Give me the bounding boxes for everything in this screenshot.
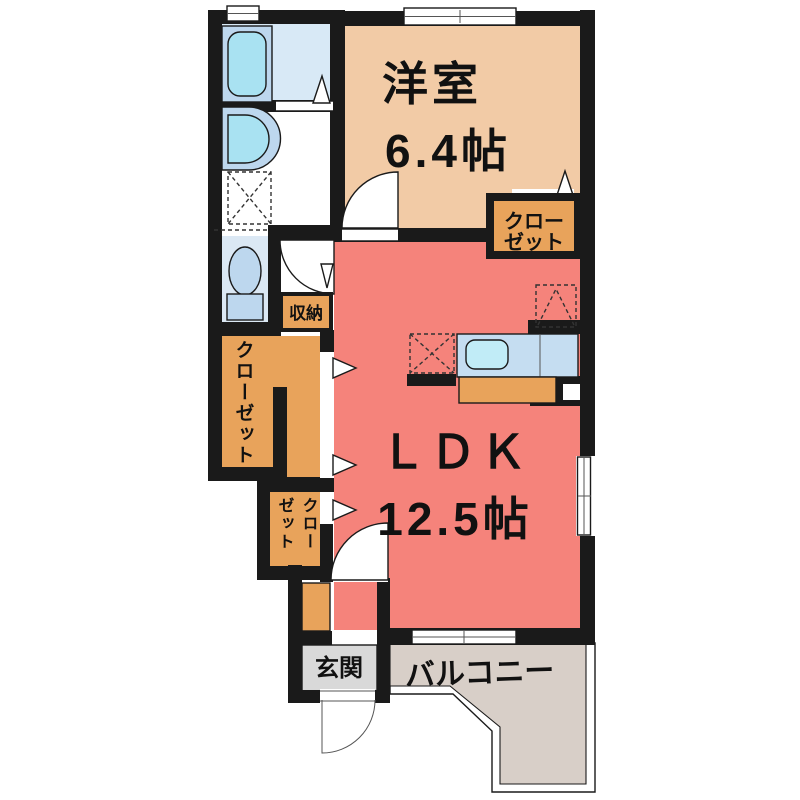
closet-label-line1: クロー xyxy=(504,210,564,233)
western-room-size: 6.4帖 xyxy=(385,125,511,177)
entry-closet-col-left: ゼット xyxy=(276,497,295,551)
pipe-space xyxy=(563,384,580,400)
wall-entry-closet-left xyxy=(257,477,270,580)
hall-sliding-track-1 xyxy=(320,352,334,478)
floor-plan: 洋室 6.4帖 ＬＤＫ 12.5帖 クロー ゼット 収納 クローゼット クロー … xyxy=(0,0,800,800)
wall-left xyxy=(208,10,222,481)
hall-sliding-track-2 xyxy=(320,492,334,524)
kitchen-lower-counter xyxy=(459,377,556,403)
entrance-door-swing xyxy=(322,700,375,753)
wall-shoe-cabinet xyxy=(290,631,332,645)
kitchen-sink xyxy=(466,340,508,369)
wall-mid-vertical xyxy=(330,10,345,242)
western-room-name: 洋室 xyxy=(382,58,482,110)
ldk-name: ＬＤＫ xyxy=(380,426,530,478)
storage-label: 収納 xyxy=(289,303,323,323)
toilet-bowl xyxy=(229,247,261,295)
ldk-size: 12.5帖 xyxy=(377,493,533,545)
entrance-label: 玄関 xyxy=(315,654,363,682)
western-door-gap xyxy=(342,229,398,241)
closet-vertical-label: クローゼット xyxy=(233,340,255,466)
wall-kitchen-nook xyxy=(407,374,456,386)
washbasin-bowl xyxy=(228,115,269,163)
closet-label-line2: ゼット xyxy=(504,230,564,254)
bathtub xyxy=(228,32,266,96)
wall-closet-corridor xyxy=(273,387,287,483)
balcony-label: バルコニー xyxy=(404,654,554,692)
wall-toilet-bottom xyxy=(222,322,281,336)
floorplan-page: 洋室 6.4帖 ＬＤＫ 12.5帖 クロー ゼット 収納 クローゼット クロー … xyxy=(0,0,800,800)
toilet-tank xyxy=(227,294,263,320)
shoe-cabinet xyxy=(302,583,330,631)
wall-right xyxy=(580,10,595,645)
entry-closet-col-right: クロー xyxy=(300,497,318,551)
